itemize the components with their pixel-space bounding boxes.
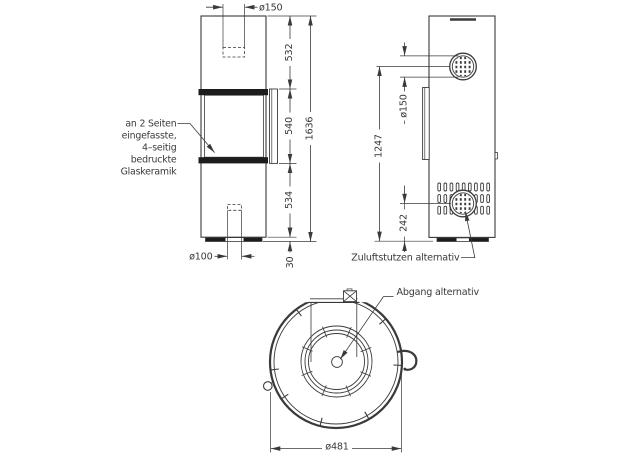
vent-slot bbox=[438, 195, 441, 203]
vent-slot bbox=[456, 183, 459, 191]
vent-slot bbox=[450, 183, 453, 191]
top-view: Abgang alternativ ø481 bbox=[264, 287, 480, 453]
side-flue-port bbox=[450, 53, 477, 80]
side-hinge-tab bbox=[495, 153, 497, 159]
front-upper-height-dim-label: 532 bbox=[284, 44, 295, 62]
side-air-inlet-port bbox=[450, 190, 477, 217]
vent-slot bbox=[481, 183, 484, 191]
vent-slot bbox=[444, 195, 447, 203]
outlet-label: Abgang alternativ bbox=[397, 287, 480, 298]
vent-slot bbox=[487, 183, 490, 191]
front-glass-height-dim-label: 540 bbox=[284, 117, 295, 135]
vent-slot bbox=[481, 206, 484, 214]
vent-slot bbox=[487, 206, 490, 214]
side-flue-height-dim-label: 1247 bbox=[373, 134, 384, 158]
air-inlet-label: Zuluftstutzen alternativ bbox=[351, 253, 460, 264]
front-glass-frame-top-band bbox=[199, 89, 269, 95]
front-air-diameter-dim: ø100 bbox=[189, 252, 254, 263]
front-plinth-height-dim-label: 30 bbox=[285, 257, 296, 269]
stove-technical-drawing: ø150 ø100 bbox=[0, 0, 624, 460]
front-flue-diameter-dim-label: ø150 bbox=[259, 3, 282, 14]
front-view: ø150 ø100 bbox=[121, 3, 317, 269]
vent-slot bbox=[487, 195, 490, 203]
side-view: ø150 1247 242 Zuluftstutzen alternativ bbox=[351, 16, 497, 264]
front-side-glass-edge bbox=[270, 89, 278, 163]
glass-note-line-4: bedruckte bbox=[131, 155, 177, 166]
vent-slot bbox=[475, 183, 478, 191]
front-glass-frame-bottom-band bbox=[199, 157, 269, 163]
glass-note-line-3: 4–seitig bbox=[142, 143, 177, 154]
side-plinth bbox=[437, 238, 489, 242]
vent-slot bbox=[438, 183, 441, 191]
top-latch bbox=[344, 289, 357, 302]
top-flat-cap-mask bbox=[306, 288, 371, 302]
front-air-diameter-dim-label: ø100 bbox=[189, 252, 212, 263]
vent-slot bbox=[481, 195, 484, 203]
drawing-canvas: ø150 ø100 bbox=[0, 0, 624, 460]
top-side-clip bbox=[264, 381, 275, 390]
vent-slot bbox=[438, 206, 441, 214]
side-inlet-height-dim-label: 242 bbox=[398, 214, 409, 232]
top-diameter-dim-label: ø481 bbox=[325, 442, 348, 453]
front-body-outline bbox=[201, 16, 266, 237]
glass-note-line-2: eingefasste, bbox=[122, 131, 177, 142]
front-lower-height-dim-label: 534 bbox=[284, 191, 295, 209]
vent-slot bbox=[468, 183, 471, 191]
front-plinth bbox=[206, 238, 263, 242]
glass-note-line-1: an 2 Seiten bbox=[125, 119, 176, 130]
vent-slot bbox=[444, 206, 447, 214]
glass-note-line-5: Glaskeramik bbox=[121, 167, 178, 178]
front-total-height-dim-label: 1636 bbox=[305, 117, 316, 141]
side-front-glass-edge bbox=[423, 88, 430, 160]
side-flue-diameter-dim-label: ø150 bbox=[399, 94, 410, 117]
vent-slot bbox=[444, 183, 447, 191]
